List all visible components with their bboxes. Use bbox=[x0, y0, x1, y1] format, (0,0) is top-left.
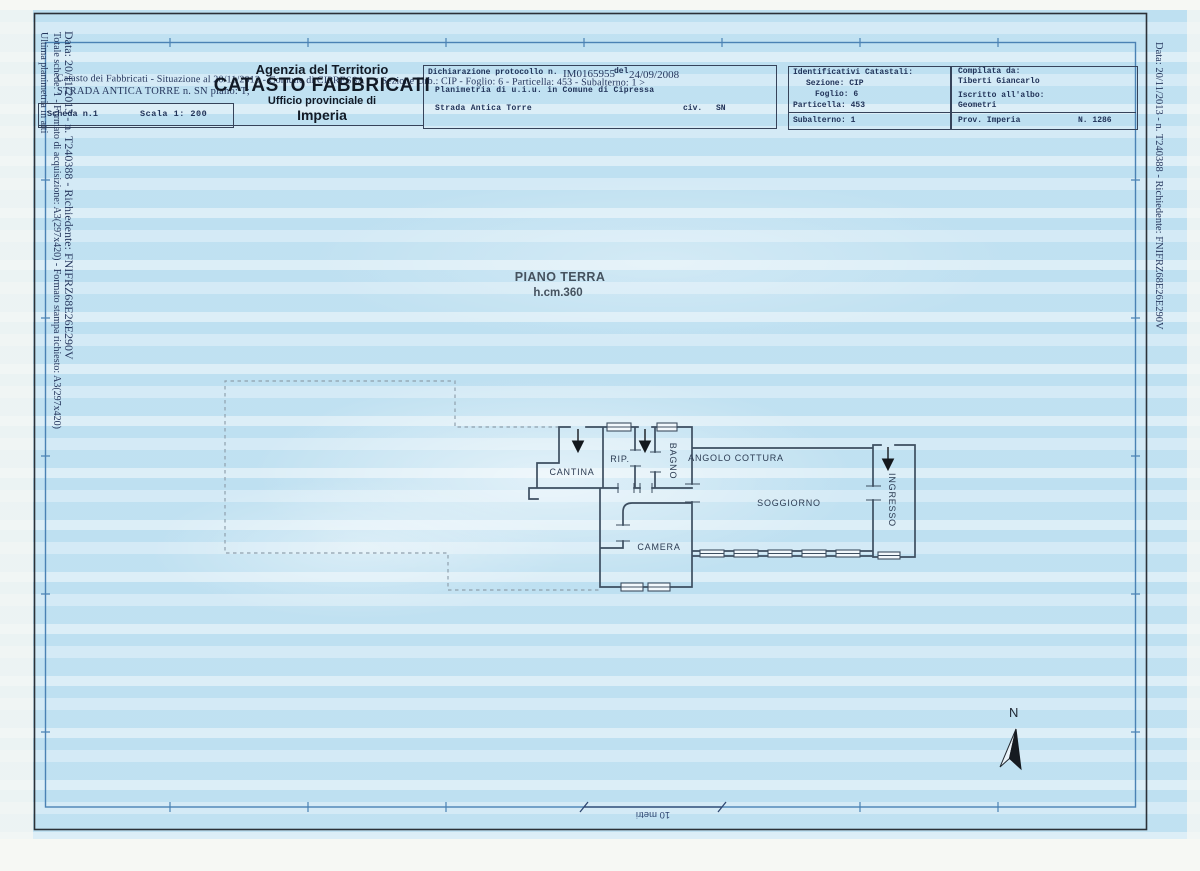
cadastral-separator bbox=[788, 112, 1136, 113]
room-label-bagno: BAGNO bbox=[668, 443, 678, 480]
protocol-date: 24/09/2008 bbox=[629, 69, 679, 81]
protocol-label: Dichiarazione protocollo n. bbox=[428, 68, 558, 77]
compiler-register: Geometri bbox=[958, 101, 996, 110]
courtyard-dashed-boundary bbox=[225, 381, 600, 590]
room-label-soggiorno: SOGGIORNO bbox=[757, 498, 821, 508]
scanned-cadastral-sheet: Ultima planimetria in atti Totale schede… bbox=[0, 0, 1200, 871]
floor-title: PIANO TERRA bbox=[515, 270, 606, 284]
room-label-rip: RIP. bbox=[610, 454, 630, 464]
cadastral-title: Identificativi Catastali: bbox=[793, 68, 913, 77]
office-line: Ufficio provinciale di bbox=[268, 95, 376, 107]
civ-label: civ. bbox=[683, 104, 702, 113]
cadastral-subalterno: Subalterno: 1 bbox=[793, 116, 855, 125]
north-label: N bbox=[1009, 705, 1018, 720]
scale-bar-label: 10 metri bbox=[636, 809, 670, 820]
compiler-name: Tiberti Giancarlo bbox=[958, 77, 1040, 86]
room-label-cantina: CANTINA bbox=[549, 467, 594, 477]
north-arrow-icon bbox=[1000, 729, 1021, 769]
right-margin-note: Data: 20/11/2013 - n. T240388 - Richiede… bbox=[1153, 42, 1164, 330]
plan-and-frame-graphics bbox=[0, 0, 1200, 871]
floor-height: h.cm.360 bbox=[533, 287, 582, 299]
frame-ticks bbox=[41, 38, 1140, 812]
compiler-number: N. 1286 bbox=[1078, 116, 1112, 125]
header-underline bbox=[38, 125, 424, 126]
compiler-province: Prov. Imperia bbox=[958, 116, 1020, 125]
cadastral-foglio: Foglio: 6 bbox=[815, 90, 858, 99]
sheet-number: Scheda n.1 bbox=[47, 109, 98, 119]
civ-value: SN bbox=[716, 104, 726, 113]
scale-value: Scala 1: 200 bbox=[140, 109, 207, 119]
inner-frame bbox=[46, 43, 1136, 808]
room-label-angolo-cottura: ANGOLO COTTURA bbox=[688, 453, 784, 463]
walls bbox=[529, 427, 915, 587]
street-name: Strada Antica Torre bbox=[435, 104, 532, 113]
outer-frame bbox=[35, 14, 1147, 830]
protocol-del-label: del bbox=[614, 67, 628, 76]
planimetry-line: Planimetria di u.i.u. in Comune di Cipre… bbox=[435, 86, 654, 95]
room-label-ingresso: INGRESSO bbox=[887, 473, 897, 527]
cadastral-sezione: Sezione: CIP bbox=[806, 79, 864, 88]
office-province: Imperia bbox=[297, 107, 347, 123]
cadastral-particella: Particella: 453 bbox=[793, 101, 865, 110]
compiler-register-label: Iscritto all'albo: bbox=[958, 91, 1044, 100]
protocol-number: IM0165955 bbox=[563, 68, 615, 80]
registry-title: CATASTO FABBRICATI bbox=[214, 75, 431, 97]
room-label-camera: CAMERA bbox=[637, 542, 680, 552]
compiler-title: Compilata da: bbox=[958, 67, 1020, 76]
door-ticks bbox=[616, 450, 881, 541]
